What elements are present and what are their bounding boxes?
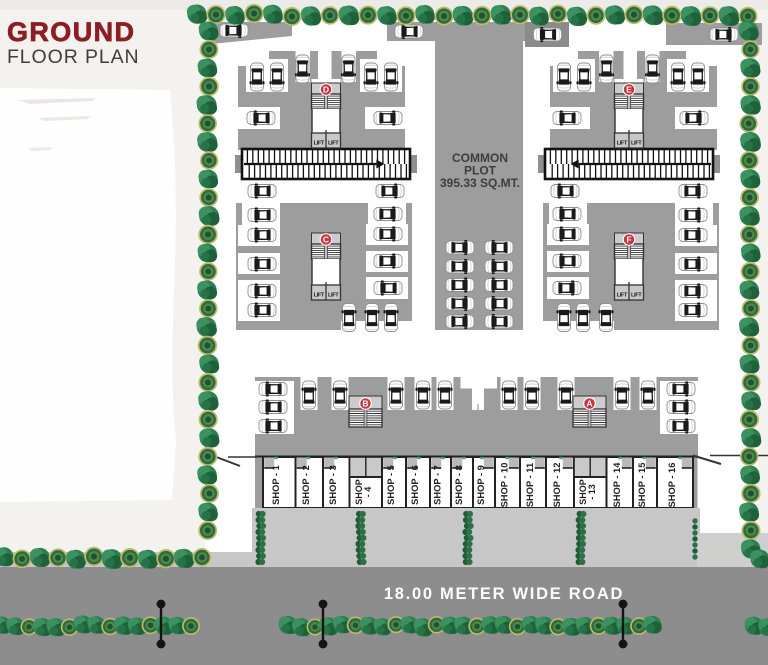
svg-text:LIFT: LIFT	[617, 293, 628, 299]
svg-text:LIFT: LIFT	[631, 293, 642, 299]
svg-text:- 4: - 4	[363, 487, 373, 498]
svg-text:SHOP - 12: SHOP - 12	[552, 463, 562, 508]
svg-text:SHOP - 3: SHOP - 3	[328, 465, 338, 505]
svg-text:GROUND: GROUND	[7, 17, 135, 47]
svg-text:SHOP - 6: SHOP - 6	[410, 465, 420, 505]
svg-text:FLOOR PLAN: FLOOR PLAN	[7, 46, 140, 68]
svg-text:18.00 METER WIDE ROAD: 18.00 METER WIDE ROAD	[384, 585, 624, 603]
svg-text:395.33 SQ.MT.: 395.33 SQ.MT.	[440, 176, 520, 190]
svg-text:E: E	[626, 85, 632, 95]
svg-text:F: F	[626, 235, 631, 245]
svg-text:C: C	[323, 235, 329, 245]
svg-text:LIFT: LIFT	[617, 141, 628, 147]
svg-text:LIFT: LIFT	[328, 293, 339, 299]
svg-text:LIFT: LIFT	[314, 293, 325, 299]
svg-text:SHOP - 7: SHOP - 7	[433, 465, 443, 505]
svg-text:SHOP - 14: SHOP - 14	[612, 462, 622, 508]
svg-text:LIFT: LIFT	[314, 141, 325, 147]
svg-text:D: D	[323, 85, 329, 95]
svg-text:SHOP - 9: SHOP - 9	[476, 465, 486, 505]
svg-text:SHOP - 1: SHOP - 1	[271, 465, 281, 505]
svg-text:SHOP - 5: SHOP - 5	[386, 465, 396, 505]
svg-text:SHOP - 16: SHOP - 16	[667, 463, 677, 508]
svg-text:- 13: - 13	[587, 484, 597, 500]
svg-text:SHOP - 15: SHOP - 15	[637, 463, 647, 508]
svg-text:B: B	[362, 399, 368, 409]
svg-text:A: A	[586, 399, 592, 409]
svg-text:SHOP - 8: SHOP - 8	[454, 465, 464, 505]
svg-text:LIFT: LIFT	[631, 141, 642, 147]
svg-text:SHOP - 10: SHOP - 10	[500, 463, 510, 508]
svg-text:SHOP - 2: SHOP - 2	[301, 465, 311, 505]
svg-text:LIFT: LIFT	[328, 141, 339, 147]
svg-text:SHOP - 11: SHOP - 11	[525, 463, 535, 507]
